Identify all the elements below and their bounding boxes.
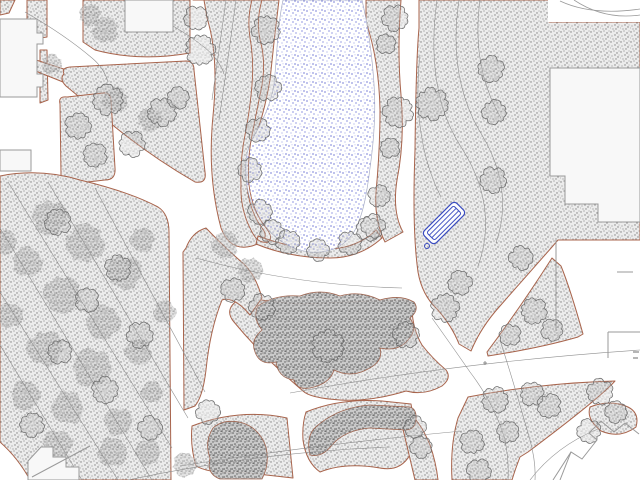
tree-symbol bbox=[416, 87, 449, 121]
tree-symbol bbox=[380, 138, 400, 158]
tree-symbol bbox=[75, 288, 98, 312]
corner-plate bbox=[548, 0, 640, 22]
tree-symbol bbox=[460, 430, 485, 453]
building-footprint-west-small bbox=[0, 150, 31, 171]
drawing-viewport[interactable] bbox=[0, 0, 640, 480]
tree-symbol bbox=[499, 324, 521, 346]
tree-symbol bbox=[497, 421, 519, 443]
building-footprint-west-tower bbox=[0, 19, 43, 97]
tree-symbol bbox=[376, 34, 396, 54]
tree-symbol bbox=[541, 319, 563, 341]
site-plan-canvas[interactable] bbox=[0, 0, 640, 480]
tree-symbol bbox=[537, 394, 560, 419]
building-footprint-top-mid bbox=[125, 0, 173, 32]
